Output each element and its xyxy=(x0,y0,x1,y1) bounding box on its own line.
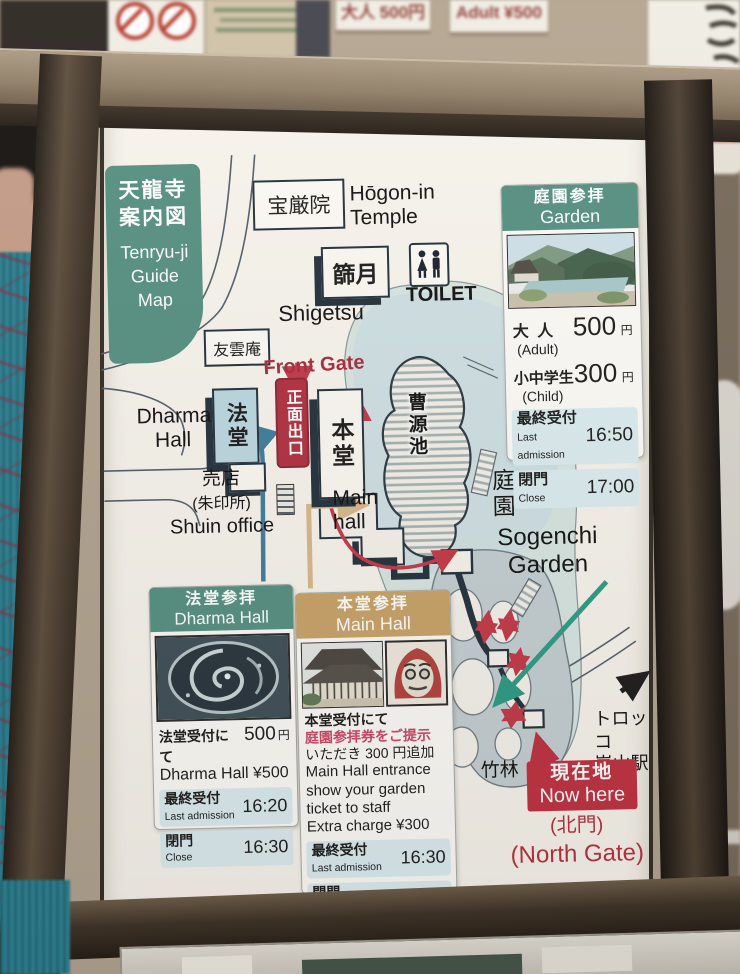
dharma-close-time: 16:30 xyxy=(243,837,289,859)
bamboo-label: 竹林 xyxy=(480,760,519,783)
dharma-hall-building: 法堂 xyxy=(212,388,260,465)
hogonin-box: 宝厳院 xyxy=(252,179,345,231)
main-hall-building-label: 本堂 xyxy=(324,417,359,470)
main-last-time: 16:30 xyxy=(400,847,446,869)
now-here-en: Now here xyxy=(539,784,625,808)
price-sign-english: Adult ¥500 xyxy=(450,0,548,34)
north-gate-ja-label: (北門) xyxy=(550,814,604,838)
garden-child-label: 小中学生 xyxy=(514,367,574,389)
map-content: 天龍寺 案内図 Tenryu-ji Guide Map 宝厳院 Hōgon-in… xyxy=(95,91,656,920)
north-gate-en-label: (North Gate) xyxy=(510,839,644,870)
garden-adult-label: 大 人 xyxy=(512,317,555,342)
garden-child-price: 300 xyxy=(574,358,618,389)
dragon-artwork-image xyxy=(155,633,292,722)
hogonin-label: 宝厳院 xyxy=(267,189,331,220)
title-ja-line1: 天龍寺 xyxy=(118,178,188,203)
dharma-close-row: 閉門 Close 16:30 xyxy=(160,829,294,869)
background-dark-object xyxy=(296,0,330,58)
garden-kanji-label: 庭園 xyxy=(488,468,516,521)
main-note-en4: Extra charge ¥300 xyxy=(307,816,449,838)
toilet-sign xyxy=(409,242,450,287)
garden-adult-price: 500 xyxy=(572,311,616,342)
dharma-price-unit: 円 xyxy=(278,726,290,743)
title-en-line1: Tenryu-ji xyxy=(120,241,188,263)
price-sign-japanese: 大人 500円 xyxy=(336,0,430,32)
map-title-badge: 天龍寺 案内図 Tenryu-ji Guide Map xyxy=(105,164,204,364)
dharma-info-box: 法堂参拝 Dharma Hall 法堂受付にて 500 xyxy=(148,584,298,830)
yuunan-label: 友雲庵 xyxy=(213,335,262,360)
garden-last-admission-row: 最終受付 Last admission 16:50 xyxy=(512,407,639,466)
garden-close-row: 閉門 Close 17:00 xyxy=(513,468,640,509)
main-last-admission-row: 最終受付 Last admission 16:30 xyxy=(306,839,451,879)
dharma-last-time: 16:20 xyxy=(242,795,288,817)
guide-map-board: 天龍寺 案内図 Tenryu-ji Guide Map 宝厳院 Hōgon-in… xyxy=(100,93,653,921)
dharma-box-header-en: Dharma Hall xyxy=(150,607,293,629)
photo-scene: 大人 500円 Adult ¥500 xyxy=(0,0,740,974)
shigetsu-building: 篩月 xyxy=(321,246,390,300)
title-en-line2: Guide xyxy=(131,265,179,286)
garden-info-box: 庭園参拝 Garden xyxy=(500,182,644,461)
garden-box-header-en: Garden xyxy=(502,205,638,228)
daruma-artwork-image xyxy=(385,639,448,706)
garden-close-time: 17:00 xyxy=(587,476,635,499)
lower-sign-content xyxy=(302,954,523,974)
dharma-price-en: Dharma Hall ¥500 xyxy=(160,764,291,785)
front-gate-banner-text: 正面出口 xyxy=(279,389,305,458)
station-arrow xyxy=(621,675,645,692)
main-hall-building: 本堂 xyxy=(317,388,365,499)
no-photo-icon xyxy=(158,2,196,40)
yuunan-box: 友雲庵 xyxy=(204,328,271,366)
hogonin-en-label: Hōgon-in Temple xyxy=(349,181,435,231)
dharma-hall-en-label: Dharma Hall xyxy=(136,404,209,454)
no-smoking-icon xyxy=(116,2,154,40)
dharma-last-admission-row: 最終受付 Last admission 16:20 xyxy=(159,787,293,827)
toilet-label: TOILET xyxy=(406,283,477,308)
dharma-hall-building-label: 法堂 xyxy=(220,402,251,451)
temple-photo xyxy=(301,641,385,709)
garden-last-time: 16:50 xyxy=(585,424,633,447)
garden-adult-unit: 円 xyxy=(621,323,633,337)
shop-label: 売店 (朱印所) Shuin office xyxy=(156,465,288,540)
title-en-line3: Map xyxy=(138,290,173,311)
shigetsu-en-label: Shigetsu xyxy=(278,299,364,326)
title-ja-line2: 案内図 xyxy=(119,205,189,230)
dharma-price-ja: 法堂受付にて xyxy=(159,725,241,767)
now-here-badge: 現在地 Now here xyxy=(526,759,637,811)
main-hall-info-box: 本堂参拝 Main Hall xyxy=(295,589,458,894)
shigetsu-label: 篩月 xyxy=(332,255,379,290)
garden-child-unit: 円 xyxy=(622,370,634,384)
dharma-price-value: 500 xyxy=(244,723,276,746)
bottom-left-clothing xyxy=(0,880,70,974)
main-box-header-en: Main Hall xyxy=(296,612,450,636)
front-gate-banner: 正面出口 xyxy=(275,377,310,468)
sogenchi-garden-label: Sogenchi Garden xyxy=(477,521,618,579)
price-sign-ja-text: 大人 500円 xyxy=(341,3,425,22)
main-hall-en-label: Main hall xyxy=(332,486,379,535)
pond-label: 曹源池 xyxy=(404,392,427,458)
now-here-ja: 現在地 xyxy=(550,762,613,784)
garden-photo xyxy=(507,232,637,309)
toilet-pictogram-icon xyxy=(414,248,445,281)
price-sign-en-text: Adult ¥500 xyxy=(456,3,542,22)
main-note-en1: Main Hall entrance xyxy=(305,761,447,783)
